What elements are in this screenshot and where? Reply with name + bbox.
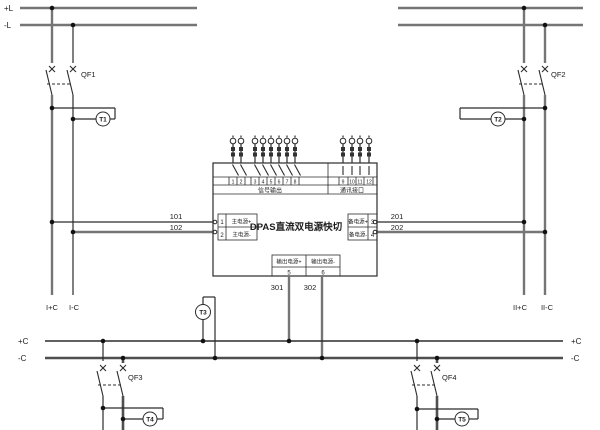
- wire-302-label: 302: [304, 283, 317, 292]
- wire-202-label: 202: [391, 223, 404, 232]
- signal-terminal-no: 5: [270, 179, 273, 185]
- signal-terminal-no: 6: [278, 179, 281, 185]
- monitor-t5-label: T5: [458, 417, 466, 424]
- module-title: DPAS直流双电源快切: [250, 221, 343, 233]
- comm-lead: [357, 136, 363, 176]
- wire-301-label: 301: [271, 283, 284, 292]
- wire-102-label: 102: [170, 223, 183, 232]
- branch-qf4: QF4 T5: [411, 341, 478, 430]
- feeder-II: QF2 T2 II+C II-C: [460, 8, 566, 312]
- breaker-qf2-label: QF2: [551, 70, 566, 79]
- branch-qf3: QF3 T4: [97, 341, 163, 430]
- signal-section-label: 信号输出: [258, 187, 282, 195]
- monitor-t1: T1: [52, 108, 115, 126]
- terminal-no: 2: [220, 233, 224, 239]
- signal-lead: [238, 136, 246, 176]
- comm-terminal-no: 10: [349, 179, 355, 185]
- dpas-module: 1 2 3 4 5 6 7 8 9 10 11 12 信号输出 通讯接口 DPA…: [213, 136, 377, 277]
- signal-terminal-no: 3: [254, 179, 257, 185]
- comm-terminal-no: 12: [366, 179, 372, 185]
- breaker-qf4-symbol: [411, 365, 440, 396]
- backup-input-terminal-block: 备电源+ 备电源- 3 4: [348, 214, 377, 240]
- comm-port-leads: [340, 136, 372, 176]
- signal-lead: [252, 136, 260, 176]
- signal-lead: [260, 136, 268, 176]
- bus-II: [398, 8, 583, 25]
- signal-lead: [276, 136, 284, 176]
- terminal-label: 主电源+: [232, 218, 252, 226]
- feeder-I: QF1 T1 I+C I-C: [46, 8, 115, 312]
- signal-lead: [230, 136, 238, 176]
- comm-terminal-cells: 9 10 11 12: [339, 177, 373, 185]
- output-wires: 301 302: [271, 276, 322, 358]
- feeder-right-pos-label: II+C: [513, 303, 528, 312]
- feeder-left-pos-label: I+C: [46, 303, 58, 312]
- terminal-no: 1: [220, 220, 224, 226]
- monitor-t2: T2: [460, 108, 545, 126]
- breaker-qf1-label: QF1: [81, 70, 96, 79]
- signal-terminal-no: 8: [294, 179, 297, 185]
- monitor-t2-label: T2: [494, 117, 502, 124]
- signal-terminal-cells: 1 2 3 4 5 6 7 8: [229, 177, 299, 185]
- terminal-label: 备电源+: [348, 218, 368, 226]
- monitor-t1-label: T1: [99, 117, 107, 124]
- schematic-svg: +L -L QF1 T1 I+C I-C: [0, 0, 600, 430]
- comm-terminal-no: 11: [357, 179, 362, 185]
- signal-lead: [284, 136, 292, 176]
- comm-lead: [340, 136, 346, 176]
- feeder-right-neg-label: II-C: [541, 303, 554, 312]
- control-bus-pos-label-left: +C: [18, 337, 29, 346]
- feeder-left-neg-label: I-C: [69, 303, 80, 312]
- signal-lead: [292, 136, 300, 176]
- control-bus-neg-label-left: -C: [18, 354, 27, 363]
- monitor-t5: T5: [417, 409, 478, 426]
- control-bus-pos-label-right: +C: [571, 337, 582, 346]
- main-input-wires: 101 102: [52, 212, 217, 234]
- comm-terminal-no: 9: [342, 179, 345, 185]
- wire-201-label: 201: [391, 212, 404, 221]
- bus-I: +L -L: [4, 4, 197, 30]
- comm-lead: [349, 136, 355, 176]
- terminal-label: 主电源-: [232, 231, 251, 239]
- control-bus-neg-label-right: -C: [571, 354, 580, 363]
- terminal-label: 备电源-: [349, 231, 368, 239]
- bus-pos-label: +L: [4, 4, 14, 13]
- breaker-qf2-symbol: [518, 66, 548, 95]
- main-input-terminal-block: 1 2 主电源+ 主电源-: [218, 214, 257, 240]
- terminal-label: 输出电源-: [311, 258, 335, 266]
- backup-input-wires: 201 202: [373, 212, 545, 234]
- comm-lead: [366, 136, 372, 176]
- signal-terminal-no: 4: [262, 179, 265, 185]
- breaker-qf3-symbol: [97, 365, 126, 396]
- monitor-t4-label: T4: [146, 417, 154, 424]
- signal-terminal-no: 2: [240, 179, 243, 185]
- monitor-t4: T4: [103, 408, 163, 426]
- schematic-canvas: +L -L QF1 T1 I+C I-C: [0, 0, 600, 430]
- signal-terminal-no: 1: [232, 179, 235, 185]
- signal-output-leads: [230, 136, 300, 176]
- monitor-t3: T3: [196, 297, 216, 358]
- breaker-qf4-label: QF4: [442, 373, 457, 382]
- signal-terminal-no: 7: [286, 179, 289, 185]
- breaker-qf3-label: QF3: [128, 373, 143, 382]
- comm-section-label: 通讯接口: [340, 187, 364, 195]
- signal-lead: [268, 136, 276, 176]
- breaker-qf1-symbol: [46, 66, 76, 95]
- wire-101-label: 101: [170, 212, 183, 221]
- terminal-label: 输出电源+: [276, 258, 301, 266]
- output-terminal-block: 输出电源+ 输出电源- 5 6: [272, 255, 340, 277]
- bus-neg-label: -L: [4, 21, 12, 30]
- monitor-t3-label: T3: [199, 310, 207, 317]
